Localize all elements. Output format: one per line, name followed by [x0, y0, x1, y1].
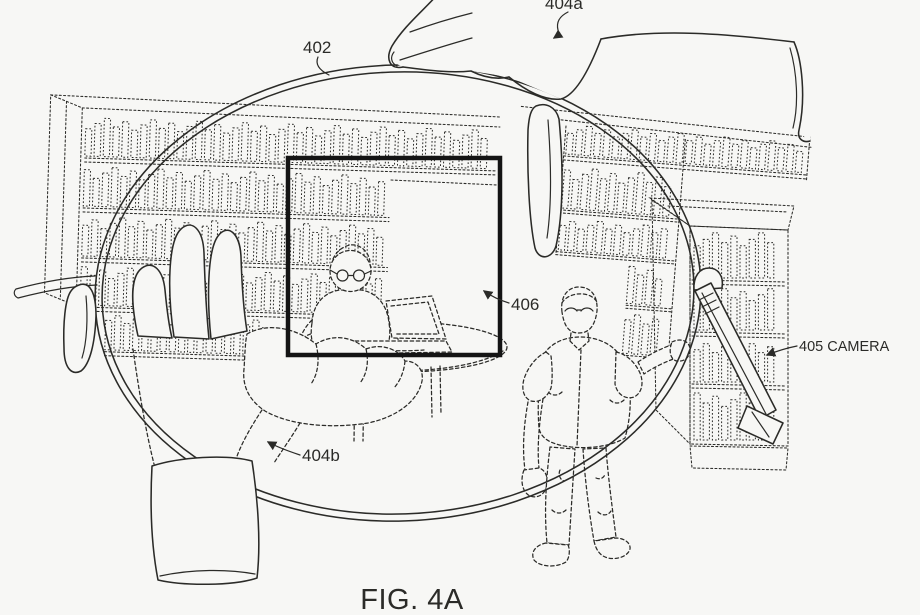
label-406: 406 [511, 295, 539, 314]
seated-person-head [330, 251, 371, 292]
standing-person-left-shoe [533, 543, 570, 566]
label-405-camera: 405 CAMERA [799, 339, 890, 355]
bottom-hand-finger [170, 225, 209, 339]
patent-figure: 402 404a 406 404b 405 CAMERA FIG. 4A [0, 0, 920, 615]
standing-person-left-hand [522, 468, 547, 497]
patent-figure-canvas: 402 404a 406 404b 405 CAMERA FIG. 4A [0, 0, 920, 615]
top-hand-thumb [528, 105, 562, 257]
label-404a: 404a [545, 0, 583, 13]
label-404b: 404b [302, 446, 340, 465]
label-402: 402 [303, 38, 331, 57]
bottom-hand-sleeve [151, 457, 259, 584]
figure-caption: FIG. 4A [360, 584, 464, 615]
